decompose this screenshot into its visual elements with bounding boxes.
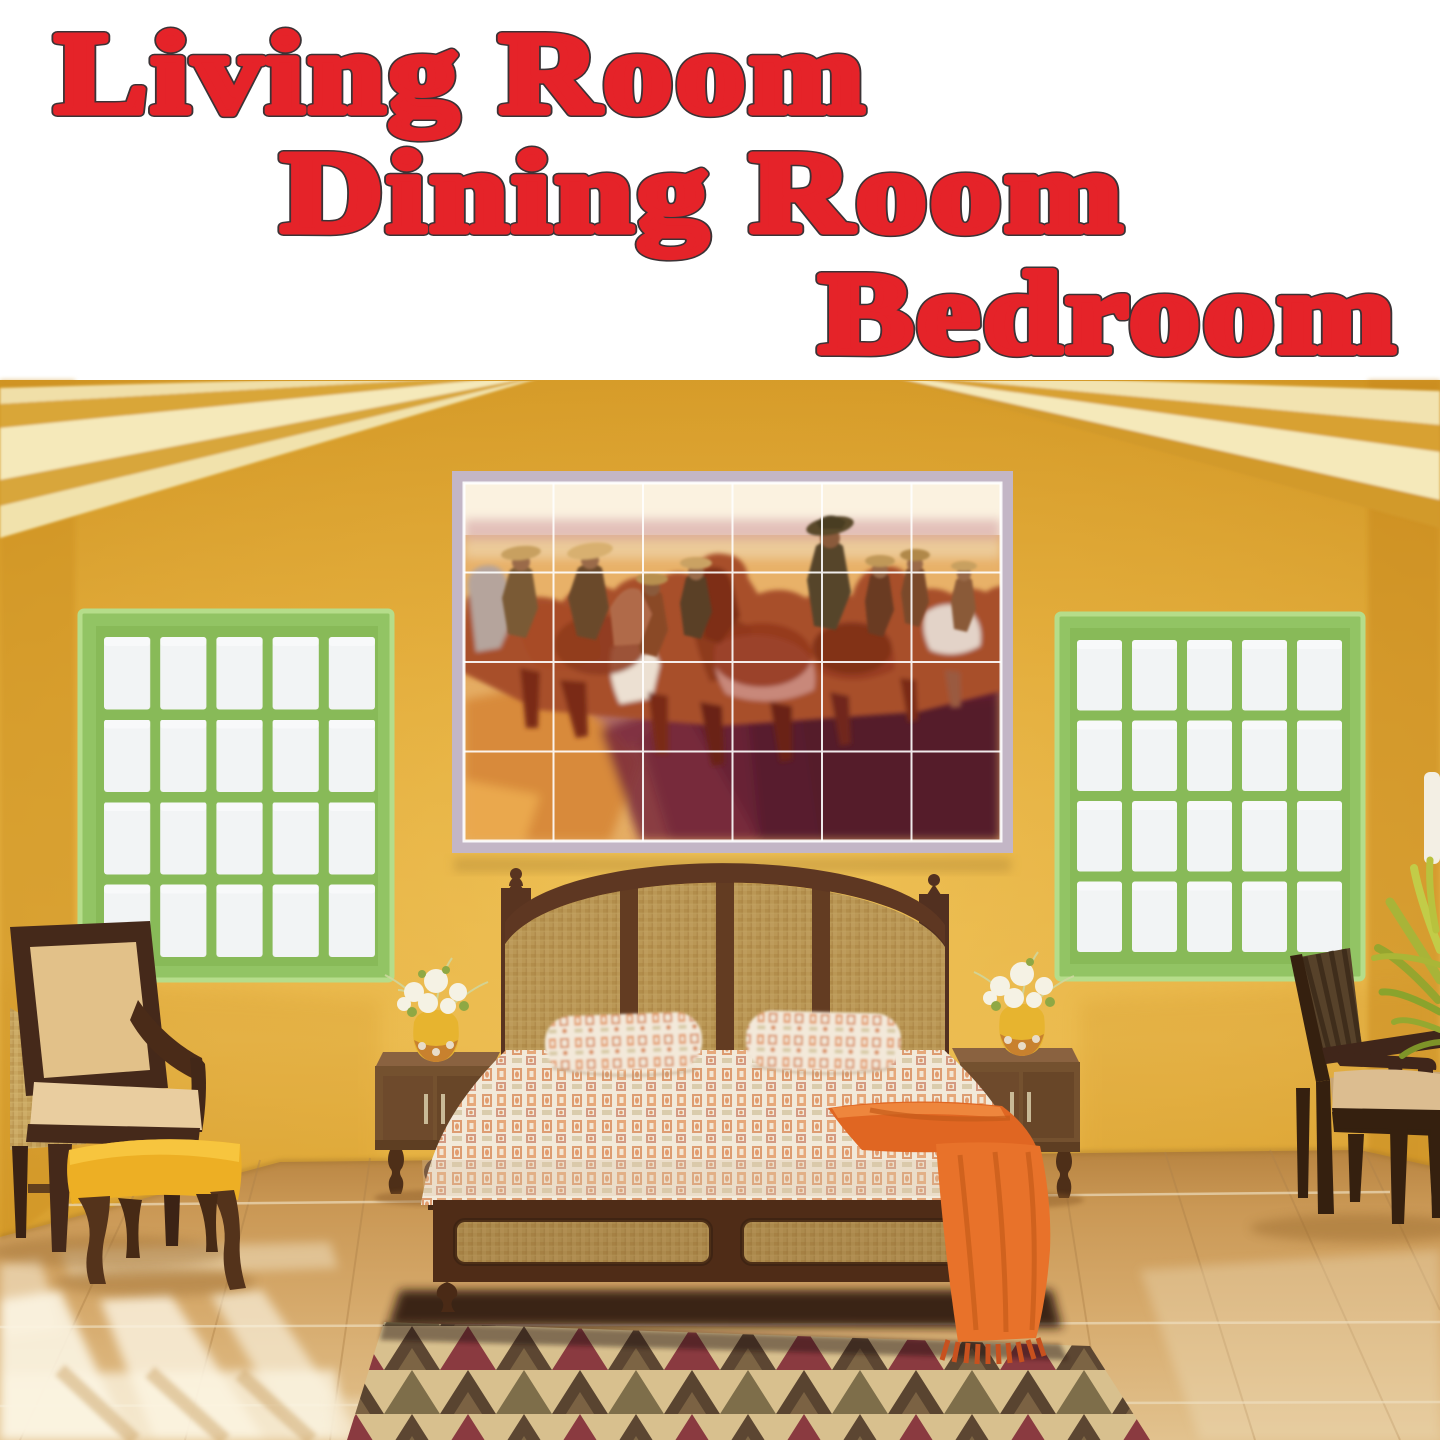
svg-text:Dining Room: Dining Room bbox=[281, 128, 1126, 257]
svg-text:Bedroom: Bedroom bbox=[819, 249, 1399, 377]
svg-text:Living Room: Living Room bbox=[55, 8, 868, 137]
